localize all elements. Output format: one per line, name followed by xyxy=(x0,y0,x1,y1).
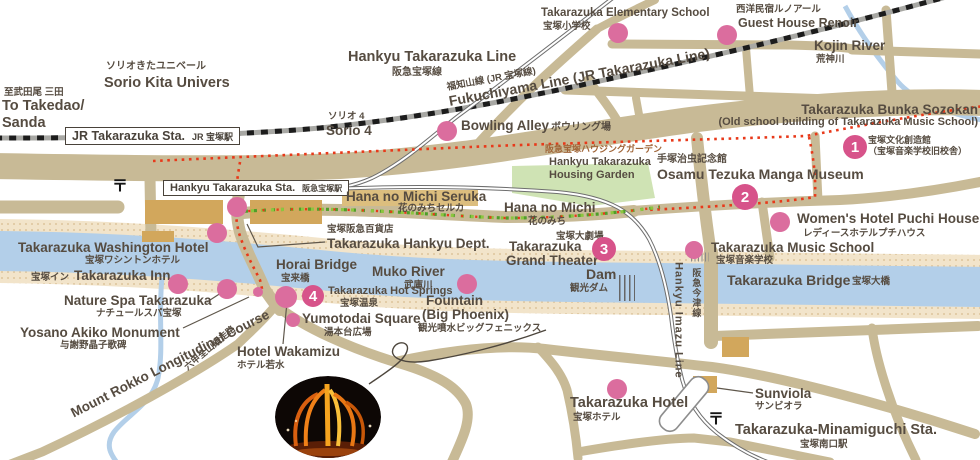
numbered-poi-marker-2: 2 xyxy=(732,184,758,210)
poi-marker xyxy=(717,25,737,45)
label-bunka-jp-1: 宝塚文化創造館 xyxy=(868,136,931,145)
label-thotel-en: Takarazuka Hotel xyxy=(570,396,688,411)
label-minami-jp: 宝塚南口駅 xyxy=(800,440,848,450)
label-horai-jp: 宝来橋 xyxy=(281,274,310,284)
label-hanamichi-en: Hana no Michi xyxy=(504,201,596,215)
label-yumotodai-en: Yumotodai Square xyxy=(302,312,421,326)
label-kojin-jp: 荒神川 xyxy=(816,55,845,65)
label-seruka-en: Hana no Michi Seruka xyxy=(346,190,486,204)
label-bridge-en: Takarazuka Bridge xyxy=(727,273,850,288)
label-sorio4-jp: ソリオ 4 xyxy=(328,112,364,122)
poi-marker xyxy=(275,286,297,308)
jr-station-name-jp: JR 宝塚駅 xyxy=(192,130,233,143)
label-housing-garden-jp: 阪急宝塚ハウジングガーデン xyxy=(545,145,662,154)
fountain-photo-inset xyxy=(275,376,381,459)
label-gtheater-en-2: Grand Theater xyxy=(506,254,598,268)
label-gtheater-en-1: Takarazuka xyxy=(509,240,582,254)
label-fountain-en-1: Fountain xyxy=(426,294,483,308)
label-yosano-jp: 与謝野晶子歌碑 xyxy=(60,341,127,351)
label-wakamizu-jp: ホテル若水 xyxy=(237,361,285,371)
label-thotel-jp: 宝塚ホテル xyxy=(573,413,621,423)
poi-marker xyxy=(286,313,300,327)
label-womens-en: Women's Hotel Puchi House xyxy=(797,212,979,226)
label-hankyu-line-en: Hankyu Takarazuka Line xyxy=(348,50,516,65)
label-bowling-jp: ボウリング場 xyxy=(551,123,611,133)
poi-marker xyxy=(457,274,477,294)
label-inn-en: Takarazuka Inn xyxy=(74,269,171,283)
label-imazu-en: Hankyu Imazu Line xyxy=(672,262,683,379)
poi-marker xyxy=(253,287,263,297)
label-inn-jp: 宝塚イン xyxy=(31,273,69,283)
takarazuka-tourist-map: JR Takarazuka Sta. JR 宝塚駅 Hankyu Takaraz… xyxy=(0,0,980,460)
label-renoir-jp: 西洋民宿ルノアール xyxy=(736,5,821,15)
label-wakamizu-en: Hotel Wakamizu xyxy=(237,345,340,359)
poi-marker xyxy=(227,197,247,217)
numbered-poi-marker-4: 4 xyxy=(302,285,324,307)
label-music-school-en: Takarazuka Music School xyxy=(711,241,874,255)
label-music-school-jp: 宝塚音楽学校 xyxy=(716,256,773,266)
jr-takarazuka-station-box: JR Takarazuka Sta. JR 宝塚駅 xyxy=(65,127,240,145)
label-nature-en: Nature Spa Takarazuka xyxy=(64,294,212,308)
label-bowling-en: Bowling Alley xyxy=(461,119,549,133)
label-tezuka-en: Osamu Tezuka Manga Museum xyxy=(657,167,864,182)
label-dam-jp: 観光ダム xyxy=(570,284,608,294)
label-fountain-jp: 観光噴水ビッグフェニックス xyxy=(418,324,541,334)
label-minami-en: Takarazuka-Minamiguchi Sta. xyxy=(735,423,937,438)
label-to-takedao-en-2: Sanda xyxy=(2,116,46,131)
label-housing-garden-en-2: Housing Garden xyxy=(549,170,635,181)
label-seruka-jp: 花のみちセルカ xyxy=(398,204,464,214)
label-hanamichi-jp: 花のみち xyxy=(528,217,566,227)
label-renoir-en: Guest House Renoir xyxy=(738,17,858,30)
label-fountain-en-2: (Big Phoenix) xyxy=(422,308,509,322)
poi-marker xyxy=(770,212,790,232)
label-dept-jp: 宝塚阪急百貨店 xyxy=(327,225,394,235)
label-imazu-jp: 阪急今津線 xyxy=(691,268,700,318)
label-to-takedao-jp: 至武田尾 三田 xyxy=(4,88,64,98)
label-bunka-jp-2: （宝塚音楽学校旧校舎） xyxy=(868,147,967,156)
label-dept-en: Takarazuka Hankyu Dept. xyxy=(327,237,490,251)
jr-station-name-en: JR Takarazuka Sta. xyxy=(72,129,185,143)
poi-marker xyxy=(608,23,628,43)
label-yosano-en: Yosano Akiko Monument xyxy=(20,326,180,340)
label-dam-en: Dam xyxy=(586,267,616,282)
label-sunviola-jp: サンビオラ xyxy=(755,402,803,412)
label-bunka-en-1: Takarazuka Bunka Sozokan xyxy=(801,103,978,117)
label-housing-garden-en-1: Hankyu Takarazuka xyxy=(549,157,651,168)
poi-marker xyxy=(168,274,188,294)
label-sorio-kita-jp: ソリオきたユニベール xyxy=(106,62,206,72)
label-bunka-en-2: (Old school building of Takarazuka Music… xyxy=(718,117,978,128)
label-womens-jp: レディースホテルプチハウス xyxy=(803,229,925,239)
label-elementary-en: Takarazuka Elementary School xyxy=(541,8,710,20)
poi-marker xyxy=(217,279,237,299)
label-muko-en: Muko River xyxy=(372,265,445,279)
numbered-poi-marker-3: 3 xyxy=(592,237,616,261)
label-hotspring-jp: 宝塚温泉 xyxy=(340,299,378,309)
post-office-icon: 〒 xyxy=(112,172,128,196)
label-sorio-kita-en: Sorio Kita Univers xyxy=(104,76,230,91)
label-horai-en: Horai Bridge xyxy=(276,258,357,272)
label-bridge-jp: 宝塚大橋 xyxy=(852,277,890,287)
label-yumotodai-jp: 湯本台広場 xyxy=(324,328,372,338)
poi-marker xyxy=(437,121,457,141)
label-tezuka-jp: 手塚治虫記念館 xyxy=(657,155,727,165)
hankyu-station-name-jp: 阪急宝塚駅 xyxy=(302,183,342,194)
label-sorio4-en: Sorio 4 xyxy=(326,124,372,138)
label-washington-jp: 宝塚ワシントンホテル xyxy=(85,256,180,266)
post-office-icon: 〒 xyxy=(708,405,724,429)
label-washington-en: Takarazuka Washington Hotel xyxy=(18,241,209,255)
label-hankyu-line-jp: 阪急宝塚線 xyxy=(392,68,442,78)
numbered-poi-marker-1: 1 xyxy=(843,135,867,159)
hankyu-takarazuka-station-box: Hankyu Takarazuka Sta. 阪急宝塚駅 xyxy=(163,180,349,196)
poi-marker xyxy=(207,223,227,243)
poi-marker xyxy=(607,379,627,399)
label-to-takedao-en-1: To Takedao/ xyxy=(2,99,84,114)
hankyu-station-name-en: Hankyu Takarazuka Sta. xyxy=(170,182,295,194)
label-sunviola-en: Sunviola xyxy=(755,387,811,401)
label-nature-jp: ナチュールスパ宝塚 xyxy=(96,309,182,319)
label-elementary-jp: 宝塚小学校 xyxy=(543,22,591,32)
poi-marker xyxy=(685,241,703,259)
label-kojin-en: Kojin River xyxy=(814,39,885,53)
fountain-callout-curl xyxy=(369,330,546,384)
